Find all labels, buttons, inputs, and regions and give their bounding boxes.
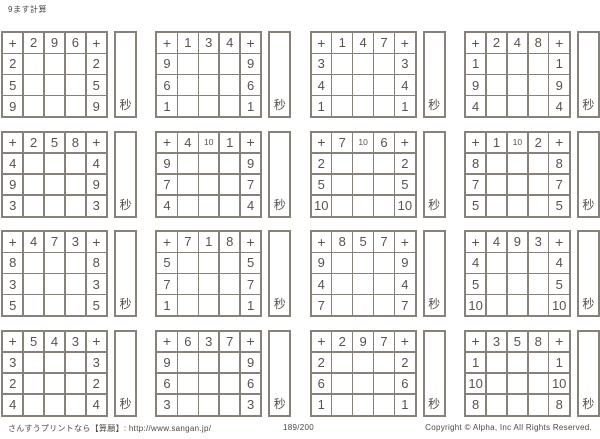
row-header: 9 <box>157 353 176 373</box>
row-header: 6 <box>312 374 331 394</box>
answer-cell <box>529 295 548 315</box>
footer-copyright: Copyright © Alpha, Inc All Rights Reserv… <box>425 423 592 432</box>
plus-operator: + <box>312 332 331 352</box>
column-header: 3 <box>66 232 85 252</box>
answer-cell <box>508 175 527 195</box>
row-header: 9 <box>3 175 22 195</box>
answer-cell <box>178 54 197 74</box>
plus-operator: + <box>157 332 176 352</box>
answer-cell <box>487 196 506 216</box>
row-header: 10 <box>312 196 331 216</box>
answer-cell <box>24 54 43 74</box>
answer-cell <box>178 395 197 415</box>
seconds-label: 秒 <box>425 395 444 412</box>
row-header-repeat: 5 <box>87 295 106 315</box>
row-header-repeat: 5 <box>241 253 260 273</box>
answer-cell <box>24 353 43 373</box>
row-header: 7 <box>466 175 485 195</box>
row-header-repeat: 3 <box>395 54 414 74</box>
column-header: 7 <box>178 232 197 252</box>
row-header-repeat: 2 <box>395 154 414 174</box>
answer-cell <box>45 295 64 315</box>
column-header: 2 <box>24 33 43 53</box>
time-box-1: 秒 <box>114 31 137 118</box>
answer-cell <box>66 295 85 315</box>
answer-cell <box>66 353 85 373</box>
column-header: 10 <box>199 133 218 153</box>
answer-cell <box>487 154 506 174</box>
time-box-10: 秒 <box>268 230 291 317</box>
answer-cell <box>529 54 548 74</box>
time-box-7: 秒 <box>423 131 446 218</box>
row-header-repeat: 9 <box>241 353 260 373</box>
footer-page-number: 189/200 <box>283 423 314 432</box>
plus-operator: + <box>3 133 22 153</box>
row-header: 1 <box>312 395 331 415</box>
row-header-repeat: 10 <box>395 196 414 216</box>
row-header-repeat: 4 <box>87 154 106 174</box>
column-header: 4 <box>487 232 506 252</box>
row-header: 5 <box>466 274 485 294</box>
column-header: 4 <box>45 332 64 352</box>
column-header: 1 <box>220 133 239 153</box>
column-header: 3 <box>66 332 85 352</box>
answer-cell <box>508 353 527 373</box>
page-title: 9ます計算 <box>8 4 47 15</box>
time-box-12: 秒 <box>577 230 600 317</box>
row-header-repeat: 1 <box>549 353 568 373</box>
answer-cell <box>353 395 372 415</box>
row-header: 8 <box>466 154 485 174</box>
plus-operator: + <box>466 33 485 53</box>
answer-cell <box>508 196 527 216</box>
plus-operator: + <box>87 133 106 153</box>
answer-cell <box>24 96 43 116</box>
row-header-repeat: 5 <box>395 175 414 195</box>
time-box-16: 秒 <box>577 330 600 417</box>
answer-cell <box>487 353 506 373</box>
addition-grid-2: +134+996611 <box>155 31 262 118</box>
addition-grid-13: +543+332244 <box>1 330 108 417</box>
row-header-repeat: 7 <box>395 295 414 315</box>
answer-cell <box>374 175 393 195</box>
plus-operator: + <box>241 232 260 252</box>
time-box-9: 秒 <box>114 230 137 317</box>
row-header: 9 <box>466 75 485 95</box>
answer-cell <box>178 274 197 294</box>
column-header: 4 <box>508 33 527 53</box>
answer-cell <box>24 175 43 195</box>
answer-cell <box>332 274 351 294</box>
seconds-label: 秒 <box>116 395 135 412</box>
answer-cell <box>45 374 64 394</box>
seconds-label: 秒 <box>270 295 289 312</box>
addition-grid-3: +147+334411 <box>310 31 417 118</box>
answer-cell <box>45 175 64 195</box>
plus-operator: + <box>312 232 331 252</box>
column-header: 9 <box>45 33 64 53</box>
answer-cell <box>199 175 218 195</box>
column-header: 2 <box>332 332 351 352</box>
addition-grid-1: +296+225599 <box>1 31 108 118</box>
row-header-repeat: 10 <box>549 374 568 394</box>
answer-cell <box>529 253 548 273</box>
answer-cell <box>66 75 85 95</box>
plus-operator: + <box>87 332 106 352</box>
answer-cell <box>487 96 506 116</box>
answer-cell <box>332 295 351 315</box>
seconds-label: 秒 <box>425 295 444 312</box>
answer-cell <box>374 274 393 294</box>
row-header-repeat: 5 <box>549 274 568 294</box>
row-header-repeat: 5 <box>87 75 106 95</box>
answer-cell <box>374 253 393 273</box>
addition-grid-14: +637+996633 <box>155 330 262 417</box>
row-header-repeat: 6 <box>395 374 414 394</box>
footer-site-link: さんすうプリントなら【算願】: http://www.sangan.jp/ <box>8 423 211 434</box>
plus-operator: + <box>241 133 260 153</box>
answer-cell <box>178 295 197 315</box>
answer-cell <box>508 395 527 415</box>
answer-cell <box>332 395 351 415</box>
answer-cell <box>529 196 548 216</box>
row-header: 3 <box>3 196 22 216</box>
plus-operator: + <box>3 232 22 252</box>
answer-cell <box>220 175 239 195</box>
answer-cell <box>220 374 239 394</box>
column-header: 3 <box>199 332 218 352</box>
answer-cell <box>45 353 64 373</box>
problem-group-12: +493+44551010秒 <box>464 230 600 317</box>
column-header: 8 <box>529 332 548 352</box>
answer-cell <box>199 196 218 216</box>
seconds-label: 秒 <box>579 295 598 312</box>
addition-grid-5: +258+449933 <box>1 131 108 218</box>
row-header-repeat: 4 <box>549 253 568 273</box>
answer-cell <box>24 154 43 174</box>
time-box-3: 秒 <box>423 31 446 118</box>
answer-cell <box>24 374 43 394</box>
seconds-label: 秒 <box>579 196 598 213</box>
row-header: 3 <box>312 54 331 74</box>
plus-operator: + <box>395 33 414 53</box>
addition-grid-6: +4101+997744 <box>155 131 262 218</box>
row-header-repeat: 9 <box>87 96 106 116</box>
column-header: 10 <box>353 133 372 153</box>
answer-cell <box>24 295 43 315</box>
answer-cell <box>45 253 64 273</box>
addition-grid-4: +248+119944 <box>464 31 571 118</box>
answer-cell <box>529 154 548 174</box>
column-header: 7 <box>220 332 239 352</box>
row-header-repeat: 3 <box>87 274 106 294</box>
time-box-13: 秒 <box>114 330 137 417</box>
answer-cell <box>487 274 506 294</box>
answer-cell <box>199 96 218 116</box>
answer-cell <box>332 374 351 394</box>
column-header: 7 <box>374 332 393 352</box>
answer-cell <box>66 253 85 273</box>
column-header: 4 <box>24 232 43 252</box>
row-header: 7 <box>312 295 331 315</box>
seconds-label: 秒 <box>579 96 598 113</box>
row-header: 8 <box>466 395 485 415</box>
problem-group-10: +718+557711秒 <box>155 230 291 317</box>
column-header: 7 <box>374 232 393 252</box>
row-header: 8 <box>3 253 22 273</box>
answer-cell <box>45 274 64 294</box>
answer-cell <box>332 75 351 95</box>
row-header-repeat: 7 <box>241 175 260 195</box>
row-header-repeat: 2 <box>87 374 106 394</box>
row-header: 1 <box>157 96 176 116</box>
row-header: 9 <box>157 154 176 174</box>
row-header-repeat: 9 <box>395 253 414 273</box>
answer-cell <box>487 54 506 74</box>
problem-group-8: +1102+887755秒 <box>464 131 600 218</box>
answer-cell <box>178 253 197 273</box>
time-box-6: 秒 <box>268 131 291 218</box>
column-header: 4 <box>178 133 197 153</box>
answer-cell <box>178 96 197 116</box>
answer-cell <box>178 196 197 216</box>
answer-cell <box>199 75 218 95</box>
column-header: 9 <box>353 332 372 352</box>
row-header-repeat: 8 <box>87 253 106 273</box>
column-header: 10 <box>508 133 527 153</box>
row-header-repeat: 8 <box>549 154 568 174</box>
answer-cell <box>178 75 197 95</box>
row-header-repeat: 9 <box>549 75 568 95</box>
row-header-repeat: 4 <box>549 96 568 116</box>
answer-cell <box>529 75 548 95</box>
row-header: 2 <box>3 374 22 394</box>
row-header: 6 <box>157 374 176 394</box>
answer-cell <box>45 75 64 95</box>
column-header: 4 <box>353 33 372 53</box>
row-header-repeat: 9 <box>241 154 260 174</box>
answer-cell <box>332 353 351 373</box>
answer-cell <box>220 253 239 273</box>
answer-cell <box>45 395 64 415</box>
column-header: 1 <box>487 133 506 153</box>
column-header: 7 <box>332 133 351 153</box>
plus-operator: + <box>395 332 414 352</box>
answer-cell <box>178 154 197 174</box>
answer-cell <box>529 175 548 195</box>
row-header: 4 <box>3 395 22 415</box>
row-header-repeat: 5 <box>549 196 568 216</box>
answer-cell <box>529 96 548 116</box>
answer-cell <box>220 295 239 315</box>
addition-grid-15: +297+226611 <box>310 330 417 417</box>
column-header: 2 <box>529 133 548 153</box>
answer-cell <box>508 54 527 74</box>
plus-operator: + <box>466 332 485 352</box>
column-header: 1 <box>199 232 218 252</box>
row-header: 4 <box>312 274 331 294</box>
answer-cell <box>45 96 64 116</box>
answer-cell <box>66 274 85 294</box>
answer-cell <box>199 154 218 174</box>
plus-operator: + <box>549 33 568 53</box>
addition-grid-16: +358+11101088 <box>464 330 571 417</box>
row-header-repeat: 9 <box>241 54 260 74</box>
row-header: 1 <box>157 295 176 315</box>
answer-cell <box>374 395 393 415</box>
answer-cell <box>332 253 351 273</box>
column-header: 2 <box>24 133 43 153</box>
seconds-label: 秒 <box>270 395 289 412</box>
row-header: 2 <box>3 54 22 74</box>
time-box-15: 秒 <box>423 330 446 417</box>
answer-cell <box>374 154 393 174</box>
answer-cell <box>353 96 372 116</box>
column-header: 8 <box>220 232 239 252</box>
seconds-label: 秒 <box>116 295 135 312</box>
problem-group-15: +297+226611秒 <box>310 330 446 417</box>
time-box-14: 秒 <box>268 330 291 417</box>
row-header: 4 <box>157 196 176 216</box>
answer-cell <box>353 154 372 174</box>
answer-cell <box>24 75 43 95</box>
answer-cell <box>178 353 197 373</box>
row-header: 5 <box>312 175 331 195</box>
answer-cell <box>199 353 218 373</box>
answer-cell <box>24 196 43 216</box>
answer-cell <box>353 175 372 195</box>
column-header: 7 <box>45 232 64 252</box>
answer-cell <box>529 374 548 394</box>
problem-group-7: +7106+22551010秒 <box>310 131 446 218</box>
row-header: 5 <box>466 196 485 216</box>
row-header-repeat: 8 <box>549 395 568 415</box>
answer-cell <box>353 295 372 315</box>
row-header: 4 <box>312 75 331 95</box>
column-header: 2 <box>487 33 506 53</box>
answer-cell <box>220 353 239 373</box>
row-header-repeat: 1 <box>549 54 568 74</box>
row-header: 1 <box>312 96 331 116</box>
column-header: 5 <box>508 332 527 352</box>
answer-cell <box>529 353 548 373</box>
answer-cell <box>487 75 506 95</box>
seconds-label: 秒 <box>425 96 444 113</box>
seconds-label: 秒 <box>425 196 444 213</box>
seconds-label: 秒 <box>116 96 135 113</box>
answer-cell <box>45 196 64 216</box>
answer-cell <box>508 295 527 315</box>
plus-operator: + <box>466 133 485 153</box>
row-header: 1 <box>466 353 485 373</box>
answer-cell <box>24 395 43 415</box>
column-header: 3 <box>487 332 506 352</box>
answer-cell <box>374 196 393 216</box>
problem-group-5: +258+449933秒 <box>1 131 137 218</box>
plus-operator: + <box>87 33 106 53</box>
answer-cell <box>374 54 393 74</box>
column-header: 3 <box>199 33 218 53</box>
answer-cell <box>374 374 393 394</box>
row-header-repeat: 1 <box>241 96 260 116</box>
row-header: 9 <box>312 253 331 273</box>
column-header: 5 <box>24 332 43 352</box>
answer-cell <box>220 274 239 294</box>
answer-cell <box>66 96 85 116</box>
seconds-label: 秒 <box>270 96 289 113</box>
column-header: 8 <box>332 232 351 252</box>
answer-cell <box>508 274 527 294</box>
row-header: 7 <box>157 274 176 294</box>
answer-cell <box>199 253 218 273</box>
problem-group-2: +134+996611秒 <box>155 31 291 118</box>
plus-operator: + <box>241 332 260 352</box>
row-header: 10 <box>466 295 485 315</box>
plus-operator: + <box>3 33 22 53</box>
column-header: 7 <box>374 33 393 53</box>
column-header: 8 <box>66 133 85 153</box>
answer-cell <box>374 96 393 116</box>
row-header: 1 <box>466 54 485 74</box>
answer-cell <box>332 96 351 116</box>
problem-group-9: +473+883355秒 <box>1 230 137 317</box>
row-header-repeat: 4 <box>395 75 414 95</box>
answer-cell <box>66 175 85 195</box>
row-header-repeat: 2 <box>395 353 414 373</box>
column-header: 5 <box>353 232 372 252</box>
answer-cell <box>374 353 393 373</box>
row-header: 3 <box>3 274 22 294</box>
row-header: 10 <box>466 374 485 394</box>
row-header: 2 <box>312 154 331 174</box>
answer-cell <box>508 96 527 116</box>
row-header-repeat: 4 <box>241 196 260 216</box>
column-header: 4 <box>220 33 239 53</box>
row-header-repeat: 4 <box>87 395 106 415</box>
answer-cell <box>199 54 218 74</box>
plus-operator: + <box>3 332 22 352</box>
answer-cell <box>508 253 527 273</box>
answer-cell <box>353 253 372 273</box>
column-header: 8 <box>529 33 548 53</box>
problem-group-1: +296+225599秒 <box>1 31 137 118</box>
row-header: 4 <box>3 154 22 174</box>
plus-operator: + <box>87 232 106 252</box>
answer-cell <box>374 295 393 315</box>
answer-cell <box>508 154 527 174</box>
answer-cell <box>353 274 372 294</box>
answer-cell <box>353 75 372 95</box>
answer-cell <box>66 395 85 415</box>
answer-cell <box>487 374 506 394</box>
answer-cell <box>199 374 218 394</box>
problem-group-16: +358+11101088秒 <box>464 330 600 417</box>
answer-cell <box>66 154 85 174</box>
addition-grid-12: +493+44551010 <box>464 230 571 317</box>
row-header-repeat: 1 <box>395 96 414 116</box>
row-header: 4 <box>466 253 485 273</box>
row-header: 5 <box>3 75 22 95</box>
column-header: 6 <box>178 332 197 352</box>
column-header: 6 <box>374 133 393 153</box>
answer-cell <box>66 374 85 394</box>
plus-operator: + <box>549 133 568 153</box>
time-box-2: 秒 <box>268 31 291 118</box>
answer-cell <box>487 175 506 195</box>
row-header: 9 <box>3 96 22 116</box>
answer-cell <box>45 154 64 174</box>
answer-cell <box>487 395 506 415</box>
